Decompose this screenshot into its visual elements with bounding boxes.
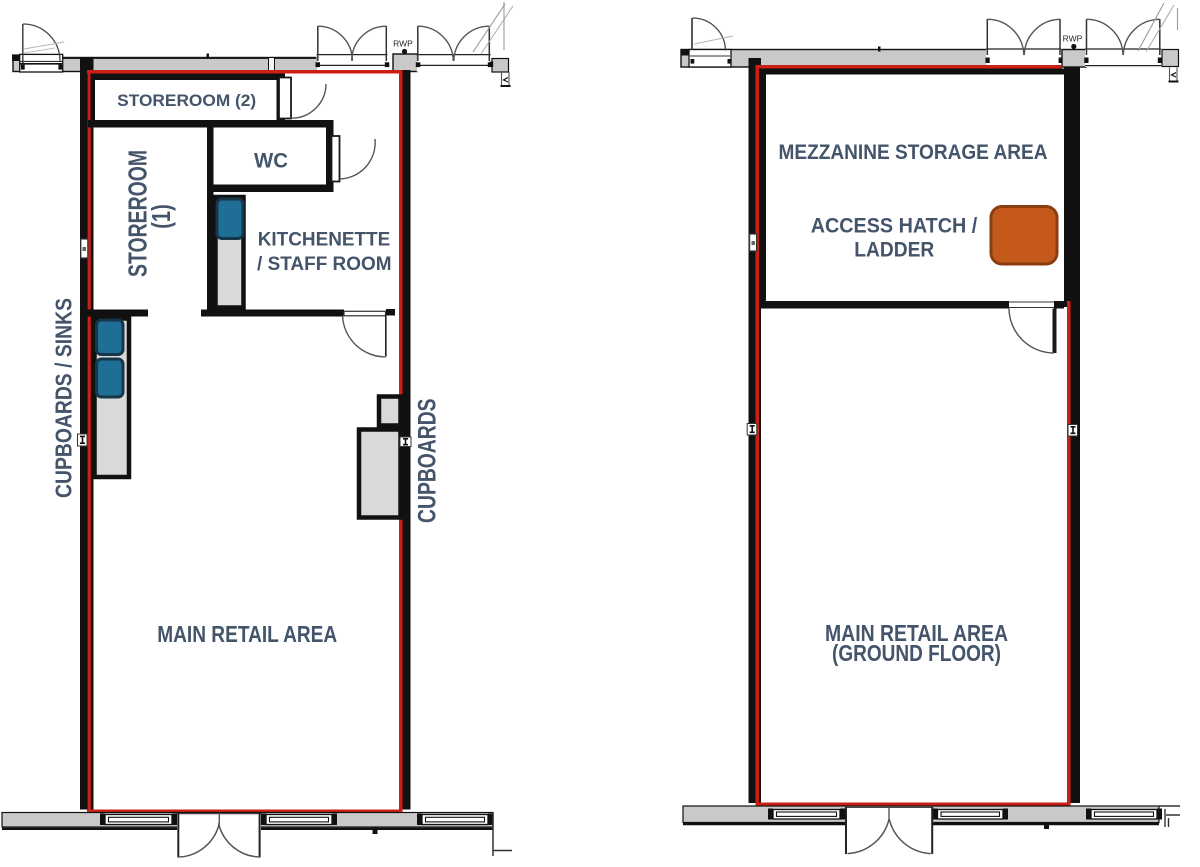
svg-text:LADDER: LADDER [854, 239, 934, 262]
svg-text:CUPBOARDS / SINKS: CUPBOARDS / SINKS [51, 298, 77, 498]
svg-text:RWP: RWP [393, 39, 413, 49]
svg-text:/ STAFF ROOM: / STAFF ROOM [257, 254, 392, 275]
svg-text:KITCHENETTE: KITCHENETTE [258, 229, 391, 250]
svg-text:(GROUND FLOOR): (GROUND FLOOR) [832, 640, 1001, 666]
svg-text:MAIN RETAIL AREA: MAIN RETAIL AREA [157, 621, 337, 647]
svg-text:RWP: RWP [1063, 34, 1083, 44]
svg-text:STOREROOM (2): STOREROOM (2) [117, 91, 256, 110]
svg-text:MEZZANINE STORAGE AREA: MEZZANINE STORAGE AREA [779, 140, 1048, 164]
svg-text:WC: WC [254, 149, 288, 172]
svg-text:CUPBOARDS: CUPBOARDS [414, 398, 442, 523]
svg-text:ACCESS HATCH /: ACCESS HATCH / [811, 215, 978, 238]
svg-text:(1): (1) [146, 204, 176, 229]
